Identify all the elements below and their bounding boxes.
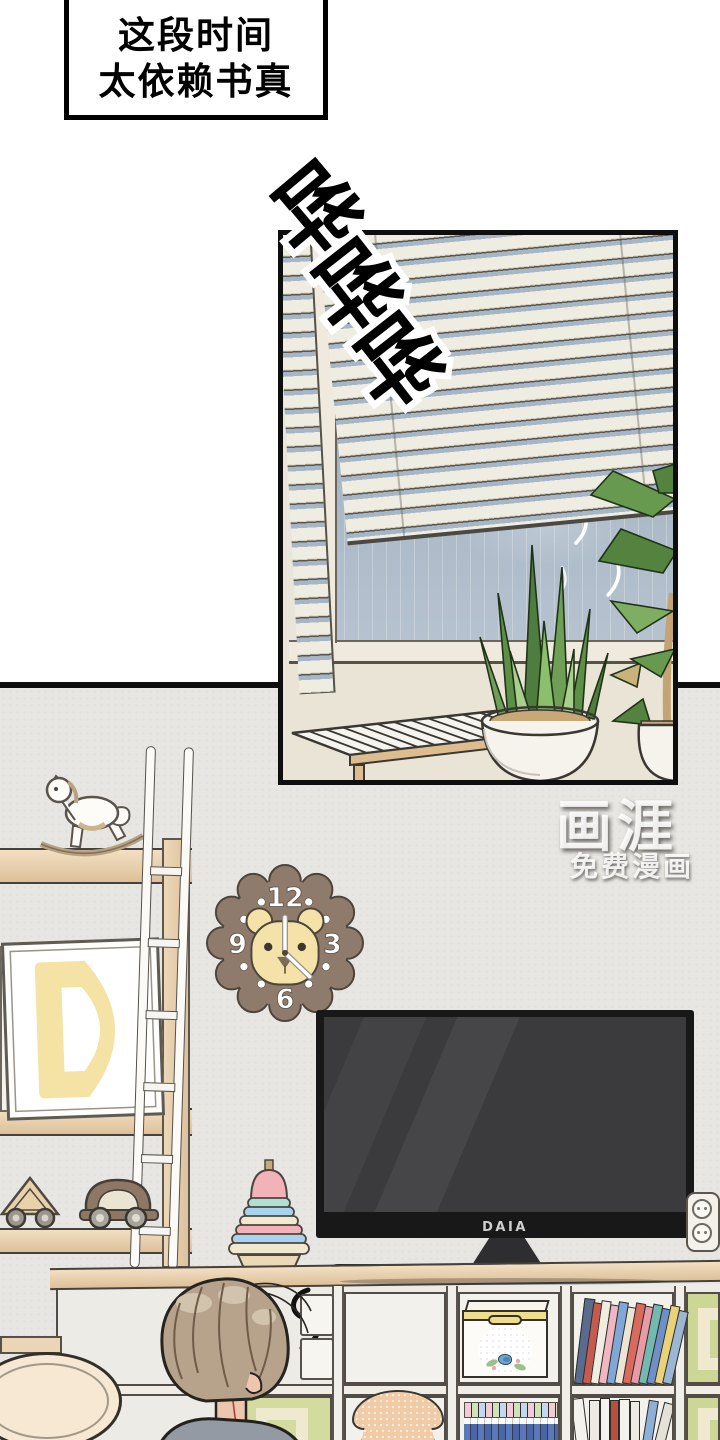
clock-number-9: 9 xyxy=(228,929,247,960)
book-series xyxy=(464,1402,558,1418)
shelf-cell-empty xyxy=(344,1292,446,1384)
cabinet-divider xyxy=(560,1286,572,1440)
clock-number-3: 3 xyxy=(323,929,342,960)
ladder-rail-right xyxy=(168,747,194,1269)
power-outlet xyxy=(686,1192,720,1252)
dialogue-box: 这段时间 太依赖书真 xyxy=(64,0,328,120)
shirt xyxy=(158,1419,302,1440)
room-panel: 12 3 6 9 DAIA xyxy=(0,682,720,1440)
arch-toy-car xyxy=(78,1174,160,1230)
table-rim xyxy=(0,1363,109,1439)
ladder-rung xyxy=(145,1010,177,1020)
rocking-horse xyxy=(35,772,150,860)
book-spine xyxy=(619,1399,630,1440)
storage-box xyxy=(462,1300,550,1380)
shelf-cell-green2 xyxy=(686,1396,720,1440)
ladder-rung xyxy=(141,1154,173,1164)
book-spine xyxy=(630,1401,640,1440)
shelf-cell-book-series xyxy=(458,1396,560,1440)
tv-screen xyxy=(324,1017,686,1212)
person-back-view xyxy=(132,1273,312,1440)
outlet-socket xyxy=(692,1199,712,1219)
television: DAIA xyxy=(316,1010,694,1238)
lion-clock: 12 3 6 9 xyxy=(206,864,364,1022)
dotted-stool-base xyxy=(360,1428,436,1440)
dialogue-line-2: 太依赖书真 xyxy=(69,59,323,105)
tv-shadow xyxy=(340,1278,670,1285)
book-spine xyxy=(572,1398,589,1440)
box-handle xyxy=(488,1315,522,1325)
box-circle-design xyxy=(478,1326,532,1374)
ladder-rung xyxy=(143,1082,175,1092)
cabinet-divider xyxy=(446,1286,458,1440)
tv-brand-label: DAIA xyxy=(316,1220,694,1235)
ladder-rung xyxy=(148,938,180,948)
comic-page: 12 3 6 9 DAIA xyxy=(0,0,720,1440)
clock-number-12: 12 xyxy=(266,882,303,913)
book-spine xyxy=(610,1400,619,1440)
box-front xyxy=(462,1310,548,1378)
book-spine xyxy=(600,1398,610,1440)
book-series-spines xyxy=(464,1424,558,1440)
ladder-rung xyxy=(150,866,182,876)
book-spine xyxy=(589,1400,600,1440)
potted-tree xyxy=(583,463,678,783)
stacking-rings-toy xyxy=(225,1158,313,1276)
dialogue-line-1: 这段时间 xyxy=(69,13,323,59)
leaning-books xyxy=(574,1294,674,1384)
triangle-toy-car xyxy=(0,1176,62,1230)
clock-number-6: 6 xyxy=(276,984,295,1015)
shelf-cell-white-books xyxy=(572,1396,674,1440)
outlet-socket xyxy=(692,1223,712,1243)
shelf-cell-green xyxy=(686,1292,720,1384)
